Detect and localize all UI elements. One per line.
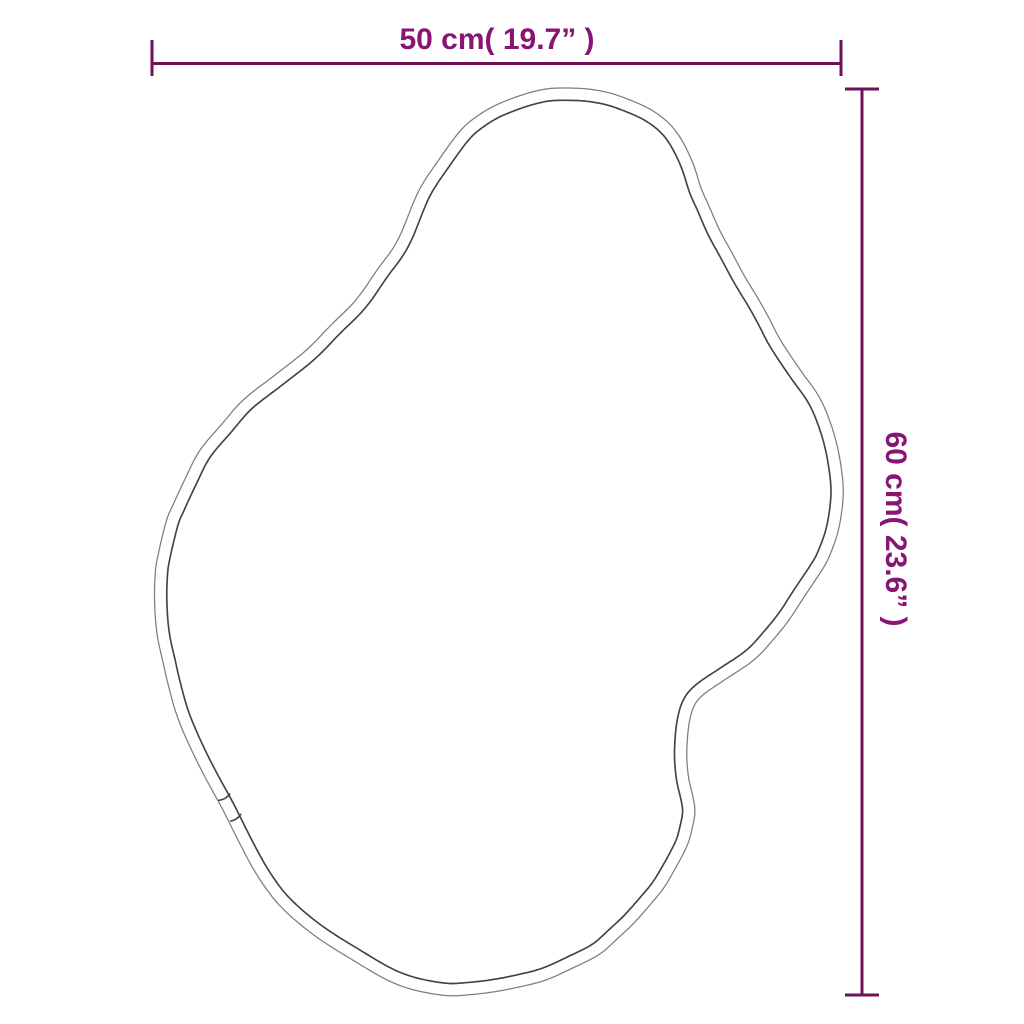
svg-text:60 cm( 23.6” ): 60 cm( 23.6” ) xyxy=(879,431,912,626)
svg-text:50 cm( 19.7” ): 50 cm( 19.7” ) xyxy=(399,23,594,56)
